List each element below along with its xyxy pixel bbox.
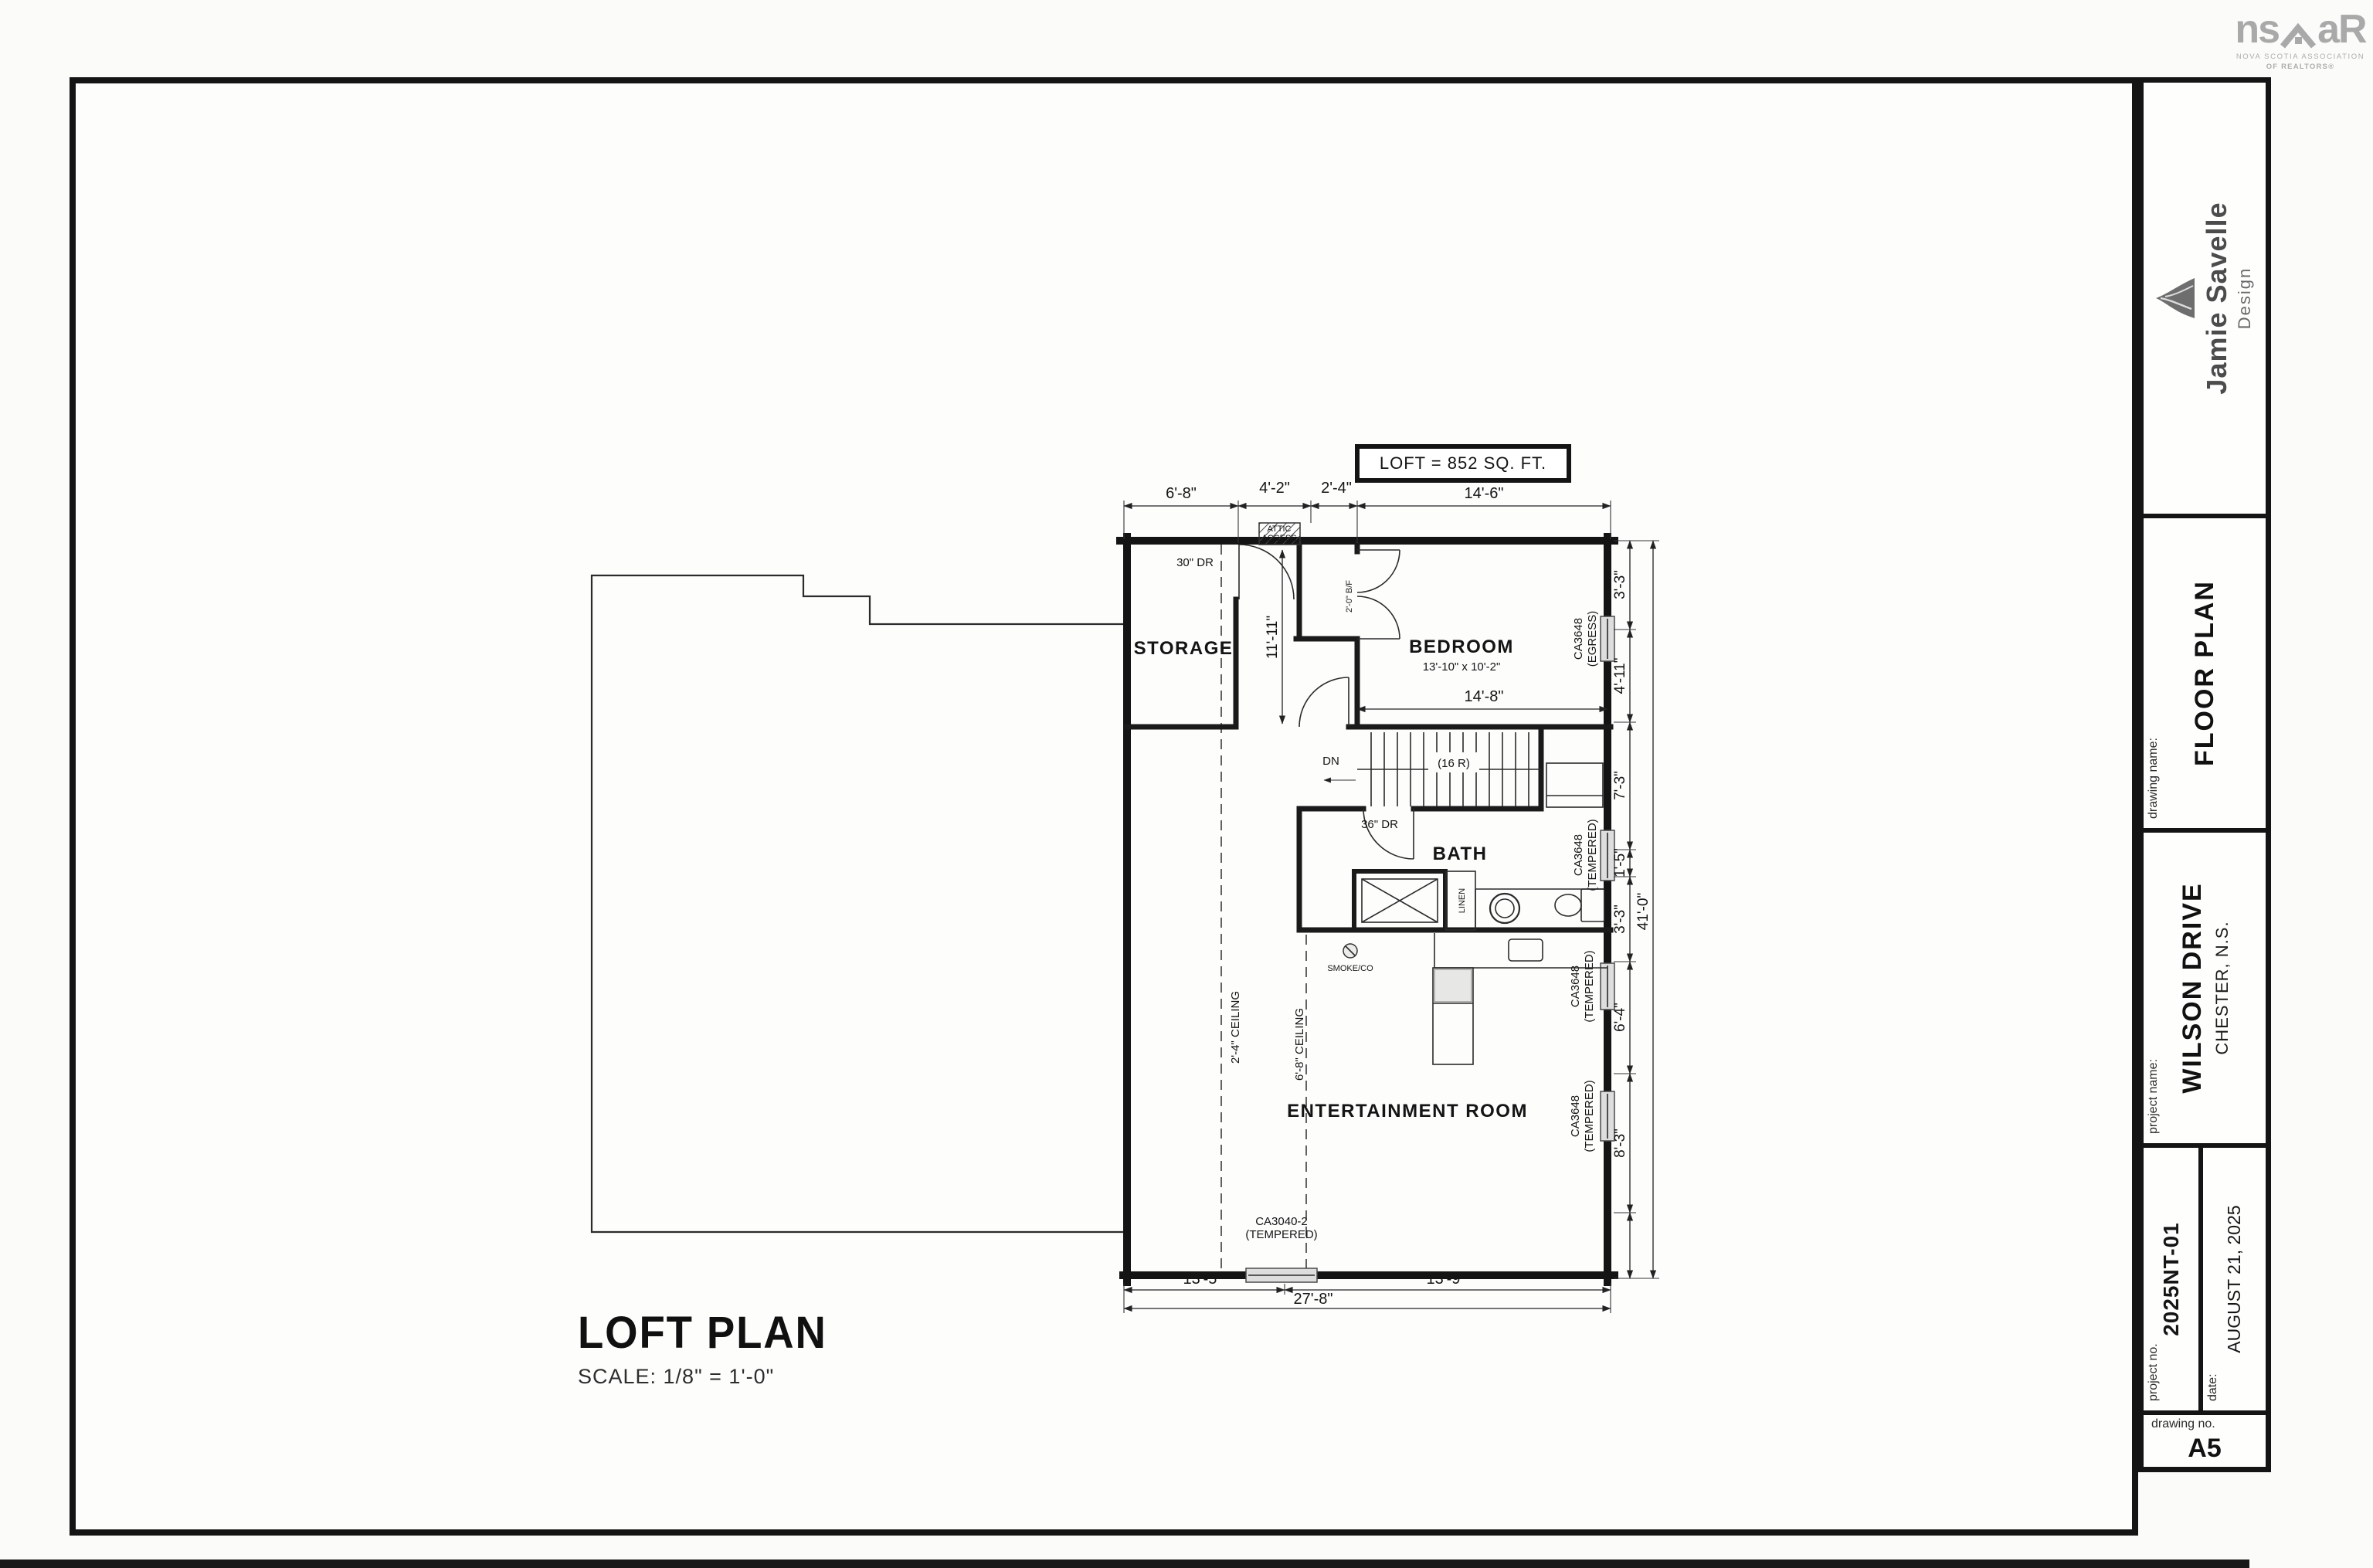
window-label: (TEMPERED) bbox=[1583, 1080, 1596, 1152]
company-name: Jamie Savelle bbox=[2201, 202, 2233, 394]
drawing-name-label: drawing name: bbox=[2147, 738, 2161, 819]
dim-label: 7'-3" bbox=[1612, 771, 1628, 800]
smoke-detector: SMOKE/CO bbox=[1327, 944, 1373, 973]
drawing-name-value: FLOOR PLAN bbox=[2190, 580, 2220, 766]
scan-edge-artifact bbox=[0, 1560, 2249, 1568]
stair-riser-count: (16 R) bbox=[1438, 757, 1470, 770]
linen-label: LINEN bbox=[1458, 888, 1467, 913]
drawing-no-value: A5 bbox=[2144, 1434, 2266, 1464]
dim-label: 13'-5" bbox=[1183, 1271, 1223, 1288]
bath-door-label: 36" DR bbox=[1361, 818, 1398, 831]
title-block-project-name: project name: WILSON DRIVE CHESTER, N.S. bbox=[2144, 828, 2266, 1143]
dim-label: 6'-8" bbox=[1166, 485, 1197, 502]
roof-outline bbox=[592, 575, 1124, 1232]
project-no-value: 2025NT-01 bbox=[2159, 1222, 2184, 1336]
dim-total-bottom: 27'-8" bbox=[1294, 1291, 1333, 1308]
smoke-label: SMOKE/CO bbox=[1327, 964, 1373, 973]
ceiling-label-left: 2'-4" CEILING bbox=[1229, 991, 1242, 1064]
loft-area-box: LOFT = 852 SQ. FT. bbox=[1357, 446, 1569, 480]
drawing-sheet: ns aR NOVA SCOTIA ASSOCIATION OF REALTOR… bbox=[0, 0, 2373, 1568]
doors: 30" DR 2'-0" B/F 36" DR bbox=[1176, 545, 1414, 859]
closet-door-label: 2'-0" B/F bbox=[1345, 580, 1354, 613]
stair-dn-label: DN bbox=[1322, 755, 1339, 768]
window-label: (TEMPERED) bbox=[1586, 819, 1599, 891]
attic-label: ACCESS bbox=[1261, 534, 1296, 543]
attic-access: ATTIC ACCESS bbox=[1259, 523, 1300, 545]
plan-title-text: LOFT PLAN bbox=[578, 1307, 827, 1359]
dim-label: 3'-3" bbox=[1612, 904, 1628, 934]
title-block: Jamie Savelle Design drawing name: FLOOR… bbox=[2138, 77, 2271, 1472]
dim-label: 8'-3" bbox=[1612, 1128, 1628, 1158]
storage-door-label: 30" DR bbox=[1176, 556, 1214, 569]
dim-label: 2'-4" bbox=[1321, 480, 1352, 497]
dim-label: 1'-5" bbox=[1612, 848, 1628, 877]
project-name-label: project name: bbox=[2147, 1059, 2161, 1134]
loft-area-label: LOFT = 852 SQ. FT. bbox=[1380, 453, 1546, 473]
window-label: CA3648 bbox=[1572, 618, 1585, 660]
jamie-savelle-logo-icon bbox=[2154, 273, 2196, 323]
title-block-drawing-name: drawing name: FLOOR PLAN bbox=[2144, 514, 2266, 828]
window-label: (EGRESS) bbox=[1586, 611, 1599, 667]
windows bbox=[1246, 616, 1614, 1282]
attic-label: ATTIC bbox=[1268, 524, 1292, 534]
ceiling-label-right: 6'-8" CEILING bbox=[1293, 1008, 1306, 1081]
project-no-label: project no. bbox=[2147, 1343, 2161, 1401]
hall-dim: 11'-11" bbox=[1265, 616, 1281, 659]
window-label: (TEMPERED) bbox=[1583, 950, 1596, 1022]
dim-label: 6'-4" bbox=[1612, 1003, 1628, 1032]
window-label: CA3040-2 bbox=[1255, 1215, 1308, 1228]
bedroom-label: BEDROOM bbox=[1409, 636, 1514, 657]
project-name-sub: CHESTER, N.S. bbox=[2212, 921, 2232, 1054]
plan-heading: LOFT PLAN SCALE: 1/8" = 1'-0" bbox=[578, 1307, 843, 1389]
date-value: AUGUST 21, 2025 bbox=[2224, 1205, 2245, 1352]
storage-label: STORAGE bbox=[1134, 638, 1234, 659]
title-block-numbers: project no. 2025NT-01 date: AUGUST 21, 2… bbox=[2144, 1143, 2266, 1410]
window-label: (TEMPERED) bbox=[1245, 1228, 1317, 1241]
project-no-cell: project no. 2025NT-01 bbox=[2144, 1148, 2198, 1410]
project-name-value: WILSON DRIVE bbox=[2178, 882, 2208, 1093]
title-block-logo-section: Jamie Savelle Design bbox=[2144, 83, 2266, 514]
dim-label: 13'-9" bbox=[1427, 1271, 1466, 1288]
dim-label: 14'-6" bbox=[1465, 485, 1504, 502]
bedroom-size-label: 13'-10" x 10'-2" bbox=[1423, 660, 1501, 674]
dim-total-right: 41'-0" bbox=[1635, 893, 1652, 930]
window-label: CA3648 bbox=[1569, 966, 1582, 1007]
dim-label: 3'-3" bbox=[1612, 570, 1628, 599]
window-label: CA3648 bbox=[1572, 834, 1585, 876]
title-block-drawing-no: drawing no. A5 bbox=[2144, 1410, 2266, 1467]
company-sub: Design bbox=[2235, 267, 2255, 329]
date-label: date: bbox=[2206, 1373, 2220, 1401]
dim-right: 3'-3" 4'-11" 7'-3" 1'-5" 3'-3" 6'-4" 8'-… bbox=[1612, 541, 1659, 1278]
stairs: (16 R) DN bbox=[1322, 732, 1603, 807]
plan-scale-text: SCALE: 1/8" = 1'-0" bbox=[578, 1365, 843, 1389]
dim-label: 4'-11" bbox=[1612, 658, 1628, 694]
floor-plan-svg: 2'-4" CEILING 6'-8" CEILING bbox=[0, 0, 2373, 1568]
drawing-no-label: drawing no. bbox=[2151, 1417, 2215, 1431]
dim-top: 6'-8" 4'-2" 2'-4" 14'-6" bbox=[1124, 480, 1611, 543]
window-label: CA3648 bbox=[1569, 1095, 1582, 1137]
date-cell: date: AUGUST 21, 2025 bbox=[2198, 1148, 2266, 1410]
bath-fixtures: LINEN bbox=[1354, 871, 1604, 930]
bath-label: BATH bbox=[1433, 843, 1488, 864]
bedroom-width-dim: 14'-8" bbox=[1465, 688, 1504, 705]
dim-label: 4'-2" bbox=[1259, 480, 1290, 497]
entertainment-label: ENTERTAINMENT ROOM bbox=[1287, 1101, 1528, 1122]
